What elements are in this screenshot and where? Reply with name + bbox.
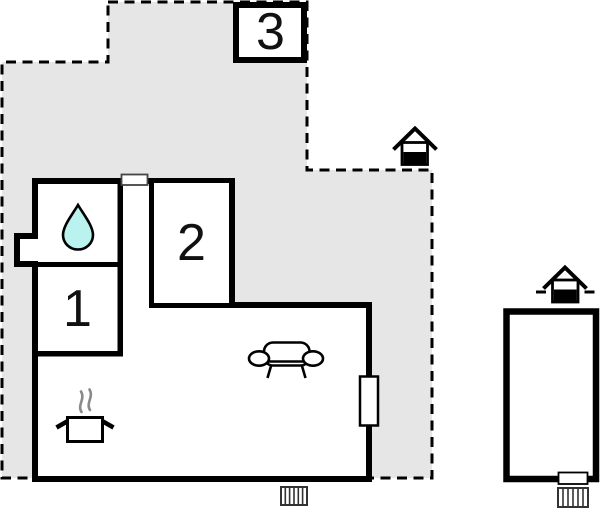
radiator-icon (281, 487, 307, 505)
house-marker-icon (536, 268, 595, 303)
room-3-label: 3 (256, 3, 285, 61)
wall-bathroom-bottom (17, 262, 123, 267)
wall-room1-bottom (35, 351, 123, 357)
door-icon (559, 473, 588, 485)
floor-plan-svg: 1 2 3 (0, 0, 600, 512)
door-icon (360, 377, 378, 426)
house-marker-icon (394, 129, 437, 165)
floor-plan-canvas: 1 2 3 (0, 0, 600, 512)
room-1-label: 1 (63, 280, 92, 338)
annex-building-outline (507, 312, 597, 480)
window-icon (122, 175, 148, 186)
radiator-icon (558, 488, 588, 507)
wall-bathroom-right (118, 181, 124, 356)
room-2-label: 2 (177, 214, 206, 272)
